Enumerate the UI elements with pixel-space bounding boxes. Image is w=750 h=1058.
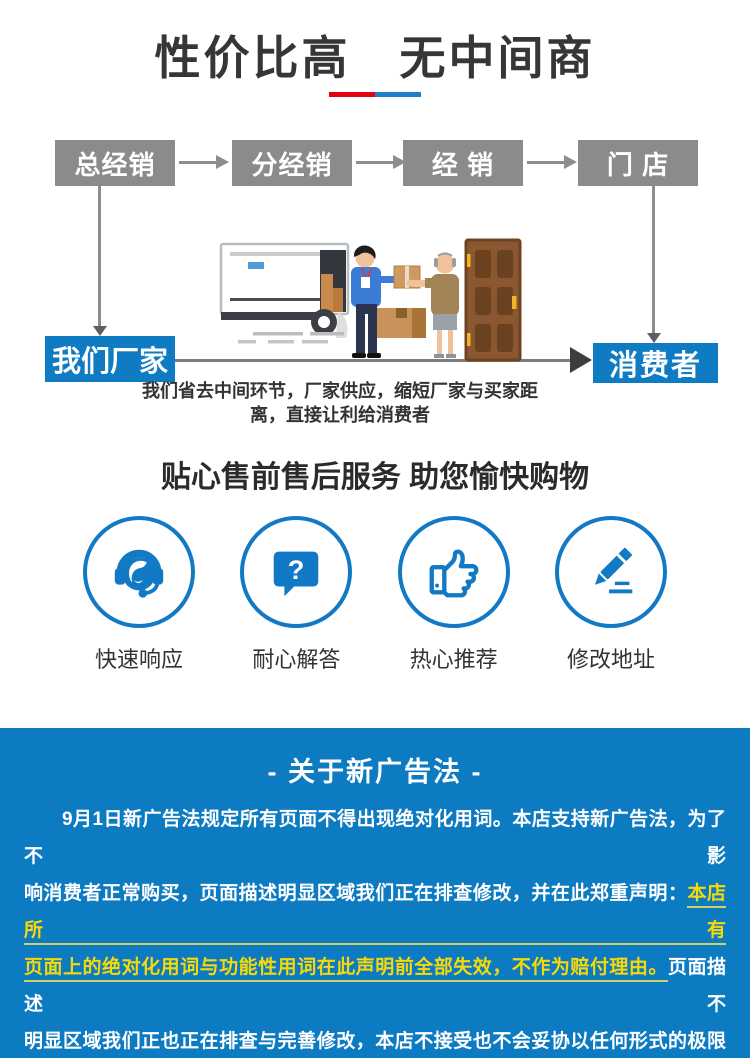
flow-arrow-1-head	[216, 155, 229, 169]
notice-line: 页面上的绝对化用词与功能性用词在此声明前全部失效，不作为赔付理由。页面描述不	[24, 949, 726, 1023]
service-item-response: 快速响应	[80, 516, 198, 674]
notice-line: 明显区域我们正也正在排查与完善修改，本店不接受也不会妥协以任何形式的极限用词	[24, 1023, 726, 1058]
flow-caption-line2: 离，直接让利给消费者	[120, 403, 560, 427]
factory-box: 我们厂家	[45, 336, 175, 382]
flow-arrow-1	[179, 161, 216, 164]
delivery-person	[351, 246, 420, 358]
headset-support-icon	[83, 516, 195, 628]
ad-law-notice-section: - 关于新广告法 - 9月1日新广告法规定所有页面不得出现绝对化用词。本店支持新…	[0, 728, 750, 1058]
consumer-box: 消费者	[593, 343, 718, 383]
service-label: 快速响应	[95, 642, 183, 674]
services-row: 快速响应 ? 耐心解答	[0, 516, 750, 674]
blue-underline-segment	[375, 92, 421, 97]
door	[466, 240, 520, 360]
truck-icon	[221, 244, 348, 344]
flow-box-general-distributor: 总经销	[55, 140, 175, 186]
notice-line: 响消费者正常购买，页面描述明显区域我们正在排查修改，并在此郑重声明：本店所有	[24, 875, 726, 949]
notice-line: 9月1日新广告法规定所有页面不得出现绝对化用词。本店支持新广告法，为了不影	[24, 801, 726, 875]
service-label: 修改地址	[567, 642, 655, 674]
services-title: 贴心售前售后服务 助您愉快购物	[0, 452, 750, 496]
delivery-illustration	[198, 236, 528, 371]
flow-caption: 我们省去中间环节，厂家供应，缩短厂家与买家距 离，直接让利给消费者	[120, 379, 560, 427]
service-item-recommend: 热心推荐	[395, 516, 513, 674]
flow-box-sub-distributor: 分经销	[232, 140, 352, 186]
thumbs-up-icon	[398, 516, 510, 628]
notice-text: 9月1日新广告法规定所有页面不得出现绝对化用词。本店支持新广告法，为了不影	[24, 809, 726, 867]
title-underline	[329, 92, 421, 97]
package-box	[376, 308, 426, 338]
question-bubble-icon: ?	[240, 516, 352, 628]
flow-box-dealer: 经 销	[403, 140, 523, 186]
page-title: 性价比高 无中间商	[0, 22, 750, 88]
pencil-edit-icon	[555, 516, 667, 628]
notice-text: 明显区域我们正也正在排查与完善修改，本店不接受也不会妥协以任何形式的极限用词	[24, 1031, 726, 1058]
notice-text: 响消费者正常购买，页面描述明显区域我们正在排查修改，并在此郑重声明：	[24, 883, 687, 904]
notice-paragraph: 9月1日新广告法规定所有页面不得出现绝对化用词。本店支持新广告法，为了不影响消费…	[0, 801, 750, 1058]
flow-caption-line1: 我们省去中间环节，厂家供应，缩短厂家与买家距	[120, 379, 560, 403]
notice-title: - 关于新广告法 -	[0, 750, 750, 789]
flow-arrow-3-head	[564, 155, 577, 169]
flow-box-store: 门 店	[578, 140, 698, 186]
connector-right	[652, 186, 655, 333]
connector-left-arrowhead	[93, 326, 107, 336]
factory-to-consumer-arrowhead	[570, 347, 592, 373]
flow-arrow-2	[356, 161, 393, 164]
service-item-edit-address: 修改地址	[552, 516, 670, 674]
promo-page: 性价比高 无中间商 总经销 分经销 经 销 门 店 我们厂家 消费者	[0, 0, 750, 1058]
service-item-answer: ? 耐心解答	[237, 516, 355, 674]
flow-arrow-2-head	[393, 155, 406, 169]
red-underline-segment	[329, 92, 375, 97]
notice-highlighted-text: 页面上的绝对化用词与功能性用词在此声明前全部失效，不作为赔付理由。	[24, 957, 668, 982]
connector-left	[98, 186, 101, 326]
service-label: 热心推荐	[410, 642, 498, 674]
svg-text:?: ?	[288, 554, 305, 585]
flow-arrow-3	[527, 161, 564, 164]
service-label: 耐心解答	[252, 642, 340, 674]
